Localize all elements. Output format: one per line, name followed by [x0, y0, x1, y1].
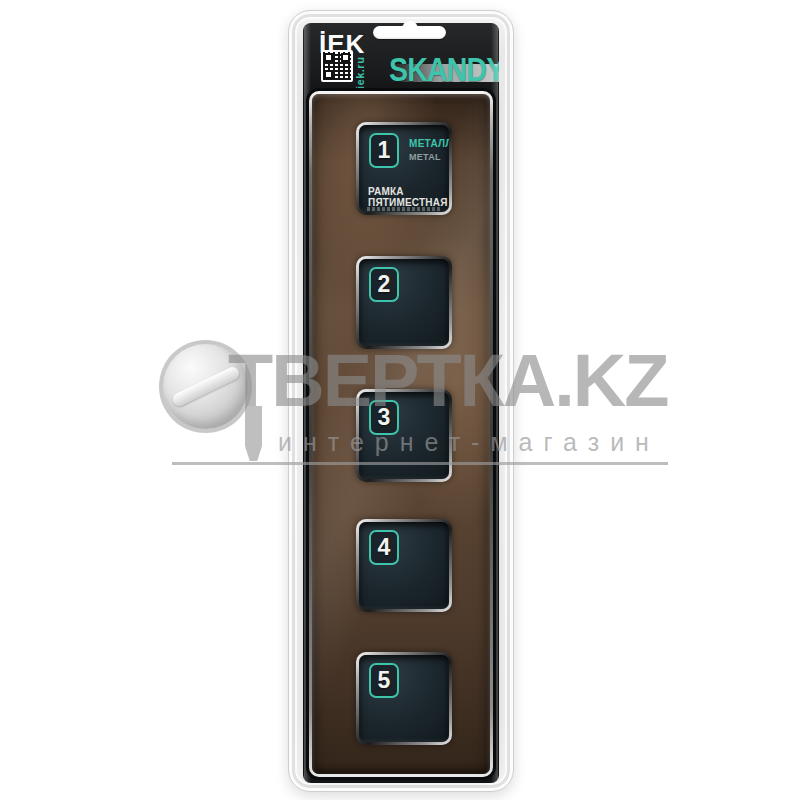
series-name: SKANDY — [389, 51, 499, 87]
frame-window-3: 3 — [356, 389, 452, 482]
frame-window-2: 2 — [356, 256, 452, 349]
qr-finder-icon — [324, 70, 333, 79]
material-label-ru: МЕТАЛЛ — [409, 138, 449, 149]
frame-face: 1 МЕТАЛЛ METAL РАМКА ПЯТИМЕСТНАЯ 2 3 — [312, 94, 490, 774]
product-name-label: РАМКА ПЯТИМЕСТНАЯ — [368, 186, 449, 208]
frame-window-cavity: 1 МЕТАЛЛ METAL РАМКА ПЯТИМЕСТНАЯ — [359, 125, 449, 212]
qr-finder-icon — [324, 53, 333, 62]
screwdriver-shaft-icon — [245, 406, 262, 446]
window-number-badge: 1 — [369, 133, 399, 168]
material-label-en: METAL — [409, 152, 441, 162]
frame-window-cavity: 3 — [359, 392, 449, 479]
frame-window-1: 1 МЕТАЛЛ METAL РАМКА ПЯТИМЕСТНАЯ — [356, 122, 452, 215]
frame-chrome-edge: 1 МЕТАЛЛ METAL РАМКА ПЯТИМЕСТНАЯ 2 3 — [309, 91, 493, 777]
screw-slot-icon — [170, 364, 240, 407]
euro-hang-slot — [373, 26, 446, 39]
qr-code-icon — [321, 50, 353, 82]
frame-window-cavity: 4 — [359, 522, 449, 609]
frame-window-cavity: 2 — [359, 259, 449, 346]
blister-package: İEK iek.ru SKANDY 1 МЕТАЛЛ METAL РАМКА П… — [288, 10, 514, 792]
qr-finder-icon — [341, 53, 350, 62]
window-number-badge: 5 — [369, 663, 399, 698]
product-photo: İEK iek.ru SKANDY 1 МЕТАЛЛ METAL РАМКА П… — [0, 0, 800, 800]
article-microtext — [367, 207, 441, 211]
window-number-badge: 2 — [369, 267, 399, 302]
frame-window-4: 4 — [356, 519, 452, 612]
frame-window-cavity: 5 — [359, 655, 449, 742]
screw-head-icon — [159, 340, 252, 433]
screwdriver-tip-icon — [245, 446, 262, 461]
window-number-badge: 3 — [369, 400, 399, 435]
frame-window-5: 5 — [356, 652, 452, 745]
window-number-badge: 4 — [369, 530, 399, 565]
iek-url-label: iek.ru — [354, 43, 366, 89]
